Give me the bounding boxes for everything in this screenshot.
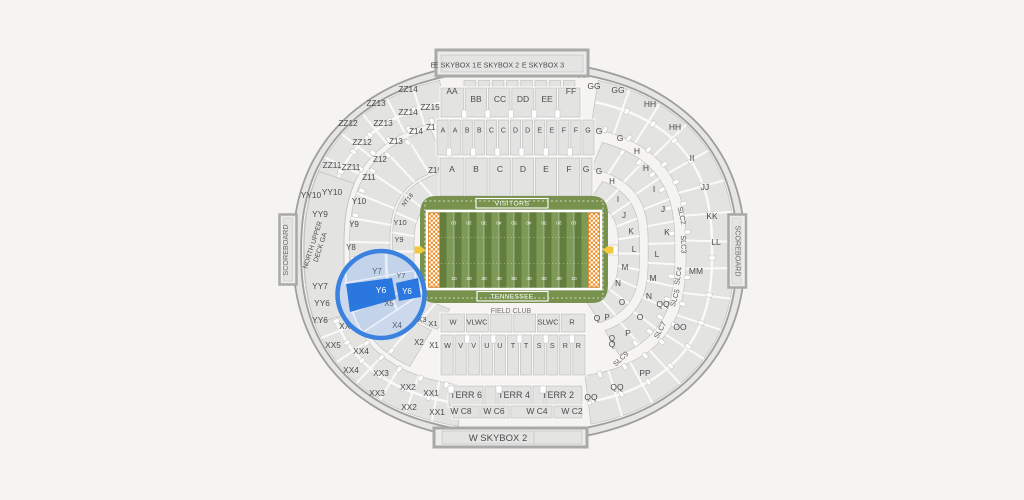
svg-text:SLWC: SLWC xyxy=(537,318,559,327)
svg-text:C: C xyxy=(501,128,506,135)
svg-text:C: C xyxy=(497,164,503,174)
svg-text:50: 50 xyxy=(511,220,517,226)
svg-text:G: G xyxy=(596,167,602,176)
svg-text:Q: Q xyxy=(594,313,601,323)
svg-text:A: A xyxy=(449,164,455,174)
svg-text:XX2: XX2 xyxy=(400,382,416,392)
svg-text:ZZ12: ZZ12 xyxy=(352,137,372,147)
svg-text:KK: KK xyxy=(706,211,718,221)
svg-text:40: 40 xyxy=(496,276,502,282)
svg-text:U: U xyxy=(497,341,502,350)
svg-text:AA: AA xyxy=(446,86,458,96)
svg-text:10: 10 xyxy=(571,276,577,282)
svg-text:30: 30 xyxy=(481,276,487,282)
svg-text:W: W xyxy=(449,318,457,327)
svg-text:W C4: W C4 xyxy=(526,406,548,416)
svg-text:YY9: YY9 xyxy=(312,209,328,219)
svg-text:K: K xyxy=(628,227,634,236)
svg-text:E: E xyxy=(549,128,554,135)
svg-text:W C8: W C8 xyxy=(450,406,472,416)
svg-text:J: J xyxy=(661,204,665,214)
svg-text:O: O xyxy=(637,312,644,322)
svg-text:30: 30 xyxy=(541,220,547,226)
svg-text:ZZ12: ZZ12 xyxy=(338,118,358,128)
svg-text:Z11: Z11 xyxy=(362,173,376,182)
svg-text:MM: MM xyxy=(689,266,703,276)
svg-text:40: 40 xyxy=(496,220,502,226)
svg-text:FF: FF xyxy=(566,86,576,96)
svg-text:I: I xyxy=(653,184,655,194)
svg-text:B: B xyxy=(473,164,479,174)
svg-text:QQ: QQ xyxy=(584,392,598,402)
svg-text:40: 40 xyxy=(526,220,532,226)
svg-text:M: M xyxy=(622,263,629,272)
svg-text:W SKYBOX 2: W SKYBOX 2 xyxy=(469,433,528,444)
svg-text:YY7: YY7 xyxy=(312,281,328,291)
svg-text:YY6: YY6 xyxy=(312,315,328,325)
svg-text:Y6: Y6 xyxy=(402,287,412,296)
svg-text:EE: EE xyxy=(541,94,553,104)
svg-text:20: 20 xyxy=(556,276,562,282)
svg-text:Y7: Y7 xyxy=(396,271,405,280)
svg-text:OO: OO xyxy=(673,322,687,332)
svg-text:ZZ11: ZZ11 xyxy=(342,162,361,172)
svg-text:20: 20 xyxy=(556,220,562,226)
svg-text:X1: X1 xyxy=(428,319,437,328)
svg-text:VLWC: VLWC xyxy=(466,318,488,327)
svg-text:TERR 4: TERR 4 xyxy=(498,390,530,400)
svg-text:B: B xyxy=(477,128,482,135)
svg-text:CC: CC xyxy=(494,94,506,104)
svg-text:SLC3: SLC3 xyxy=(679,235,689,253)
svg-text:20: 20 xyxy=(466,220,472,226)
svg-text:D: D xyxy=(525,128,530,135)
svg-text:Q: Q xyxy=(609,334,615,343)
svg-text:DD: DD xyxy=(517,94,529,104)
svg-text:10: 10 xyxy=(451,276,457,282)
svg-text:L: L xyxy=(655,249,660,259)
svg-text:ZZ15: ZZ15 xyxy=(420,102,440,112)
svg-text:XX3: XX3 xyxy=(373,368,389,378)
svg-text:D: D xyxy=(513,128,518,135)
svg-text:R: R xyxy=(563,341,568,350)
svg-text:ZZ11: ZZ11 xyxy=(323,160,342,170)
svg-text:40: 40 xyxy=(526,276,532,282)
svg-text:X4: X4 xyxy=(392,321,402,330)
svg-text:W: W xyxy=(444,341,451,350)
svg-text:XX4: XX4 xyxy=(353,346,369,356)
svg-text:T: T xyxy=(511,341,516,350)
svg-text:G: G xyxy=(585,128,590,135)
svg-text:X5: X5 xyxy=(384,299,394,308)
svg-text:BB: BB xyxy=(470,94,482,104)
svg-text:G: G xyxy=(617,133,624,143)
svg-text:Z12: Z12 xyxy=(373,155,387,164)
svg-text:O: O xyxy=(619,298,625,307)
svg-text:H: H xyxy=(643,163,649,173)
svg-text:Y10: Y10 xyxy=(352,197,367,206)
svg-text:TERR 6: TERR 6 xyxy=(450,390,482,400)
svg-text:30: 30 xyxy=(541,276,547,282)
svg-text:Z13: Z13 xyxy=(389,137,403,146)
svg-text:F: F xyxy=(574,128,578,135)
svg-text:Z14: Z14 xyxy=(409,127,423,136)
svg-text:E SKYBOX 2: E SKYBOX 2 xyxy=(477,61,519,70)
svg-text:R: R xyxy=(569,318,575,327)
svg-text:YY10: YY10 xyxy=(322,187,343,197)
svg-text:T: T xyxy=(524,341,529,350)
svg-text:Y10: Y10 xyxy=(393,218,406,227)
svg-text:E: E xyxy=(537,128,542,135)
svg-text:F: F xyxy=(566,164,571,174)
svg-text:30: 30 xyxy=(481,220,487,226)
svg-text:H: H xyxy=(634,146,640,156)
svg-text:F: F xyxy=(562,128,566,135)
svg-text:G: G xyxy=(583,164,590,174)
svg-text:I: I xyxy=(617,195,619,204)
svg-text:Y8: Y8 xyxy=(346,243,356,252)
svg-text:Y7: Y7 xyxy=(372,267,382,276)
svg-text:L: L xyxy=(632,245,637,254)
svg-text:YY6: YY6 xyxy=(314,298,330,308)
svg-text:B: B xyxy=(465,128,470,135)
svg-text:M: M xyxy=(649,273,656,283)
svg-text:W C6: W C6 xyxy=(483,406,505,416)
svg-text:R: R xyxy=(576,341,581,350)
svg-text:A: A xyxy=(453,128,458,135)
svg-text:S: S xyxy=(537,341,542,350)
svg-text:JJ: JJ xyxy=(701,182,710,192)
svg-text:P: P xyxy=(625,328,631,338)
svg-text:H: H xyxy=(609,177,615,186)
svg-text:XX2: XX2 xyxy=(401,402,417,412)
svg-text:C: C xyxy=(489,128,494,135)
svg-text:GG: GG xyxy=(587,81,600,91)
svg-text:50: 50 xyxy=(511,276,517,282)
svg-text:V: V xyxy=(458,341,463,350)
svg-text:Y9: Y9 xyxy=(349,220,359,229)
svg-text:P: P xyxy=(604,313,609,322)
svg-text:W C2: W C2 xyxy=(561,406,583,416)
svg-text:V: V xyxy=(471,341,476,350)
svg-text:X1: X1 xyxy=(429,341,439,350)
svg-text:U: U xyxy=(484,341,489,350)
svg-text:XX3: XX3 xyxy=(369,388,385,398)
svg-text:XX1: XX1 xyxy=(423,388,439,398)
svg-text:TERR 2: TERR 2 xyxy=(542,390,574,400)
svg-text:N: N xyxy=(615,279,621,288)
svg-text:J: J xyxy=(622,211,626,220)
svg-text:Y6: Y6 xyxy=(376,285,387,295)
svg-text:10: 10 xyxy=(571,220,577,226)
svg-text:YY10: YY10 xyxy=(301,190,322,200)
svg-text:SCOREBOARD: SCOREBOARD xyxy=(281,224,290,275)
svg-text:D: D xyxy=(520,164,526,174)
svg-text:E SKYBOX 3: E SKYBOX 3 xyxy=(522,61,564,70)
svg-text:10: 10 xyxy=(451,220,457,226)
svg-text:A: A xyxy=(441,128,446,135)
svg-text:QQ: QQ xyxy=(610,382,624,392)
svg-text:VISITORS: VISITORS xyxy=(495,201,530,208)
svg-text:HH: HH xyxy=(644,99,656,109)
svg-text:S: S xyxy=(550,341,555,350)
svg-text:FIELD CLUB: FIELD CLUB xyxy=(491,308,532,315)
svg-text:GG: GG xyxy=(611,85,624,95)
svg-text:ZZ13: ZZ13 xyxy=(366,98,386,108)
svg-text:ZZ14: ZZ14 xyxy=(398,107,418,117)
svg-text:SCOREBOARD: SCOREBOARD xyxy=(734,225,743,276)
svg-text:E SKYBOX 1: E SKYBOX 1 xyxy=(434,61,476,70)
svg-text:HH: HH xyxy=(669,122,681,132)
svg-text:ZZ14: ZZ14 xyxy=(398,84,418,94)
svg-text:G: G xyxy=(596,126,603,136)
svg-text:20: 20 xyxy=(466,276,472,282)
svg-text:LL: LL xyxy=(711,237,721,247)
svg-text:N: N xyxy=(646,291,652,301)
svg-text:TENNESSEE: TENNESSEE xyxy=(491,294,534,301)
svg-text:II: II xyxy=(690,153,695,163)
svg-text:Y9: Y9 xyxy=(394,235,403,244)
svg-text:XX5: XX5 xyxy=(325,340,341,350)
svg-text:X2: X2 xyxy=(414,338,424,347)
svg-text:E: E xyxy=(543,164,549,174)
svg-text:XX4: XX4 xyxy=(343,365,359,375)
svg-text:ZZ13: ZZ13 xyxy=(373,118,393,128)
svg-text:PP: PP xyxy=(639,368,651,378)
svg-text:K: K xyxy=(664,227,670,237)
svg-text:XX1: XX1 xyxy=(429,407,445,417)
